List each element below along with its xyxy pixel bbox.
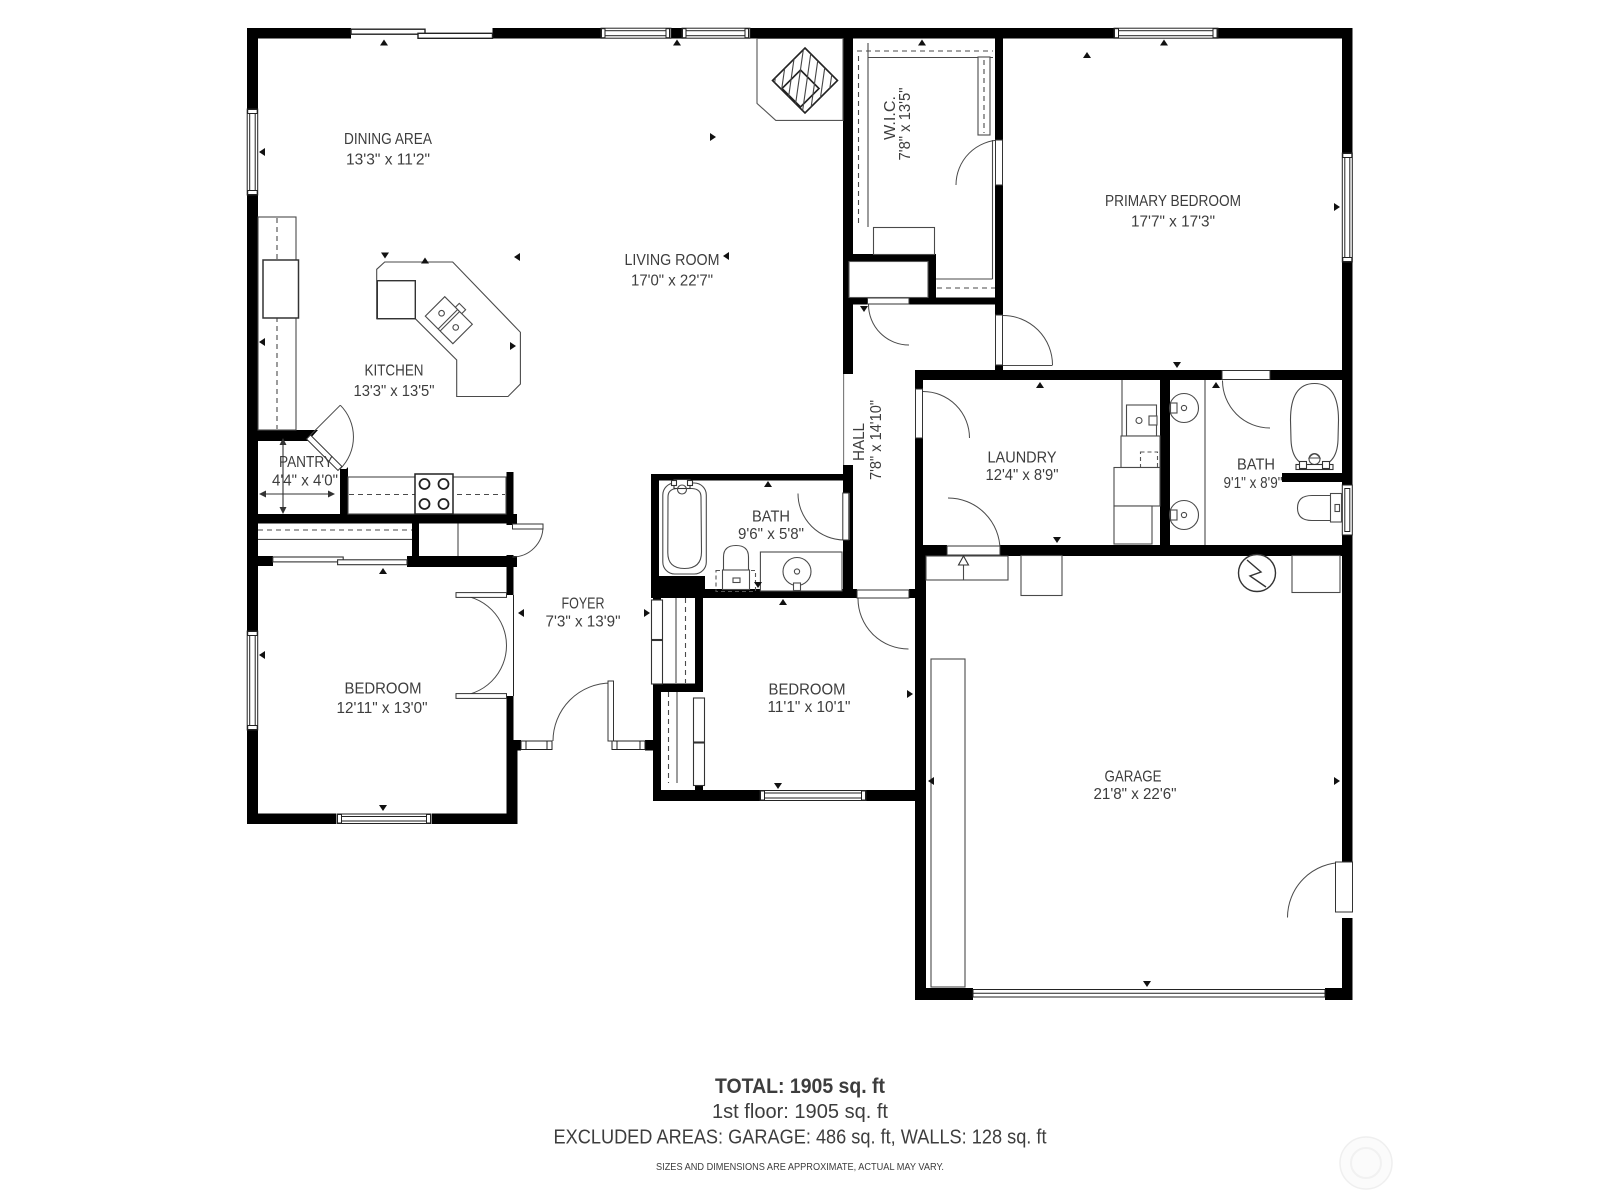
svg-text:PRIMARY BEDROOM: PRIMARY BEDROOM <box>1105 193 1241 210</box>
svg-text:PANTRY: PANTRY <box>279 454 333 471</box>
svg-text:1st floor: 1905 sq. ft: 1st floor: 1905 sq. ft <box>712 1100 888 1123</box>
svg-text:BEDROOM: BEDROOM <box>769 682 846 699</box>
svg-text:GARAGE: GARAGE <box>1105 769 1162 786</box>
svg-text:LIVING ROOM: LIVING ROOM <box>625 252 720 269</box>
svg-text:EXCLUDED AREAS: GARAGE: 486 sq: EXCLUDED AREAS: GARAGE: 486 sq. ft, WALL… <box>554 1126 1047 1149</box>
svg-text:11'1" x 10'1": 11'1" x 10'1" <box>768 699 851 716</box>
svg-text:LAUNDRY: LAUNDRY <box>988 450 1057 467</box>
svg-text:13'3" x 13'5": 13'3" x 13'5" <box>354 383 435 400</box>
svg-text:9'1" x 8'9": 9'1" x 8'9" <box>1224 475 1283 492</box>
svg-text:BATH: BATH <box>1237 457 1275 474</box>
svg-text:7'8" x 14'10": 7'8" x 14'10" <box>868 400 885 480</box>
svg-text:BEDROOM: BEDROOM <box>345 681 422 698</box>
svg-text:17'7" x 17'3": 17'7" x 17'3" <box>1131 214 1215 231</box>
svg-text:HALL: HALL <box>851 423 868 461</box>
svg-text:13'3" x 11'2": 13'3" x 11'2" <box>346 152 430 169</box>
svg-text:12'4" x 8'9": 12'4" x 8'9" <box>986 467 1059 484</box>
svg-text:DINING AREA: DINING AREA <box>344 131 432 148</box>
svg-text:KITCHEN: KITCHEN <box>365 363 424 380</box>
svg-text:FOYER: FOYER <box>562 596 605 613</box>
svg-text:TOTAL: 1905 sq. ft: TOTAL: 1905 sq. ft <box>715 1075 885 1098</box>
svg-text:7'8" x 13'5": 7'8" x 13'5" <box>897 88 914 161</box>
svg-text:9'6" x 5'8": 9'6" x 5'8" <box>738 526 804 543</box>
svg-text:12'11" x 13'0": 12'11" x 13'0" <box>337 700 428 717</box>
svg-text:BATH: BATH <box>752 509 790 526</box>
svg-text:4'4" x 4'0": 4'4" x 4'0" <box>272 473 338 490</box>
svg-text:SIZES AND DIMENSIONS ARE APPRO: SIZES AND DIMENSIONS ARE APPROXIMATE, AC… <box>656 1161 944 1173</box>
svg-text:7'3" x 13'9": 7'3" x 13'9" <box>546 614 621 631</box>
svg-text:17'0" x 22'7": 17'0" x 22'7" <box>631 273 713 290</box>
svg-text:21'8" x 22'6": 21'8" x 22'6" <box>1094 786 1177 803</box>
